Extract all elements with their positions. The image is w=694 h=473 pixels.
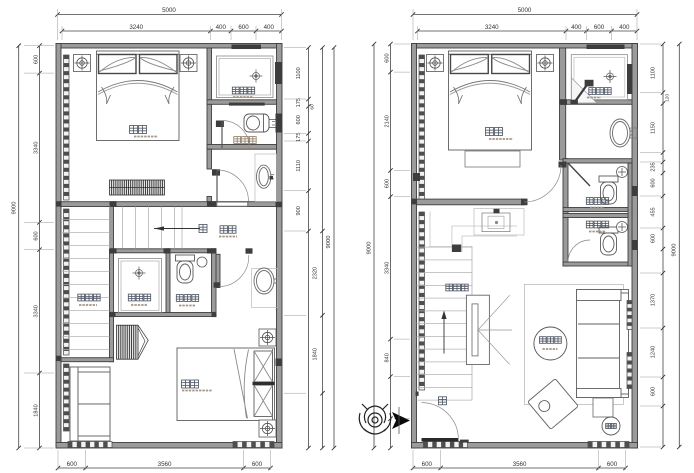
svg-text:600: 600 bbox=[34, 231, 40, 240]
svg-text:1100: 1100 bbox=[651, 67, 657, 79]
svg-text:3560: 3560 bbox=[513, 461, 527, 468]
svg-text:5000: 5000 bbox=[518, 7, 532, 14]
svg-text:9000: 9000 bbox=[12, 202, 18, 215]
svg-text:175: 175 bbox=[296, 132, 302, 141]
svg-text:400: 400 bbox=[216, 24, 227, 31]
svg-text:600: 600 bbox=[238, 24, 249, 31]
svg-text:2320: 2320 bbox=[313, 267, 319, 279]
svg-text:840: 840 bbox=[385, 353, 391, 362]
svg-text:1840: 1840 bbox=[313, 348, 319, 360]
svg-text:9000: 9000 bbox=[367, 242, 373, 255]
svg-text:9000: 9000 bbox=[326, 236, 332, 249]
svg-text:1150: 1150 bbox=[651, 122, 657, 134]
svg-text:600: 600 bbox=[594, 24, 605, 31]
svg-text:3340: 3340 bbox=[34, 305, 40, 317]
svg-text:600: 600 bbox=[296, 115, 302, 124]
svg-text:600: 600 bbox=[607, 461, 618, 468]
svg-text:900: 900 bbox=[296, 206, 302, 215]
svg-text:600: 600 bbox=[34, 55, 40, 64]
svg-text:3340: 3340 bbox=[385, 262, 391, 274]
svg-text:455: 455 bbox=[651, 207, 657, 216]
svg-text:5000: 5000 bbox=[162, 7, 176, 14]
svg-text:400: 400 bbox=[619, 24, 630, 31]
svg-text:600: 600 bbox=[385, 179, 391, 188]
svg-text:400: 400 bbox=[264, 24, 275, 31]
svg-text:235: 235 bbox=[651, 162, 657, 171]
svg-text:120: 120 bbox=[665, 94, 671, 102]
svg-text:600: 600 bbox=[385, 53, 391, 62]
svg-text:600: 600 bbox=[67, 461, 78, 468]
svg-text:3240: 3240 bbox=[129, 24, 143, 31]
svg-text:600: 600 bbox=[651, 234, 657, 243]
svg-text:9000: 9000 bbox=[672, 244, 678, 257]
svg-text:3560: 3560 bbox=[158, 461, 172, 468]
svg-text:175: 175 bbox=[296, 98, 302, 107]
svg-text:1840: 1840 bbox=[34, 404, 40, 416]
svg-text:2140: 2140 bbox=[385, 115, 391, 127]
svg-text:1240: 1240 bbox=[651, 346, 657, 358]
svg-text:600: 600 bbox=[651, 178, 657, 187]
svg-text:600: 600 bbox=[651, 387, 657, 396]
svg-text:1370: 1370 bbox=[651, 294, 657, 306]
svg-text:1100: 1100 bbox=[296, 67, 302, 79]
svg-text:1110: 1110 bbox=[296, 160, 302, 172]
svg-text:600: 600 bbox=[252, 461, 263, 468]
svg-text:60: 60 bbox=[310, 104, 316, 110]
svg-text:600: 600 bbox=[422, 461, 433, 468]
svg-text:400: 400 bbox=[571, 24, 582, 31]
svg-text:3240: 3240 bbox=[485, 24, 499, 31]
svg-text:3340: 3340 bbox=[34, 142, 40, 154]
